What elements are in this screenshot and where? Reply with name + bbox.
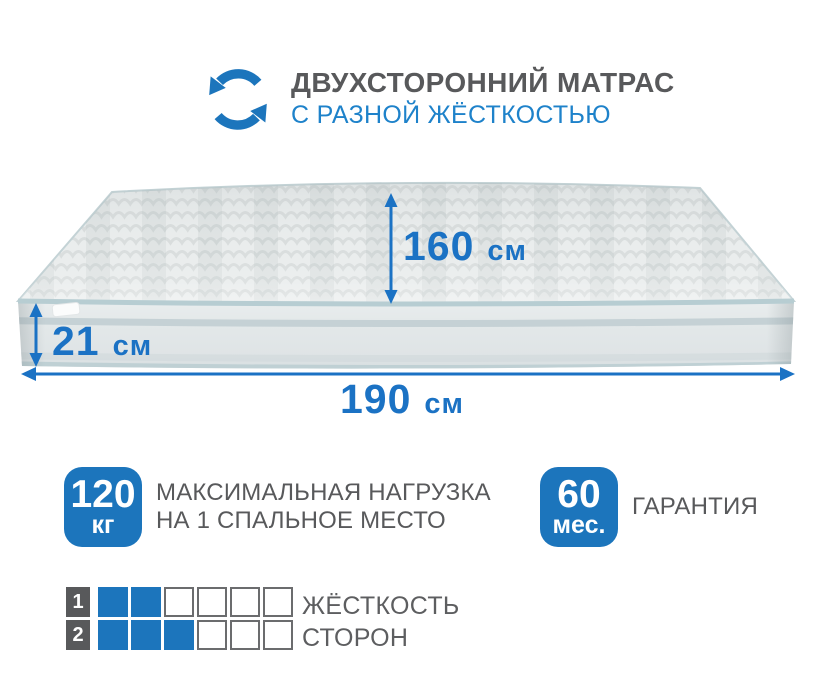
hardness-cell bbox=[164, 587, 194, 617]
warranty-label: ГАРАНТИЯ bbox=[632, 493, 758, 521]
hardness-cell bbox=[164, 620, 194, 650]
height-unit: см bbox=[113, 330, 153, 362]
warranty-value: 60 bbox=[557, 477, 600, 513]
warranty-label-line1: ГАРАНТИЯ bbox=[632, 493, 758, 521]
max-load-label-line2: НА 1 СПАЛЬНОЕ МЕСТО bbox=[156, 507, 491, 535]
warranty-feature: 60 мес. ГАРАНТИЯ bbox=[540, 467, 758, 547]
hardness-cell bbox=[263, 587, 293, 617]
hardness-row-number: 2 bbox=[66, 620, 90, 650]
hardness-cell bbox=[263, 620, 293, 650]
warranty-badge: 60 мес. bbox=[540, 467, 618, 547]
warranty-unit: мес. bbox=[553, 513, 606, 538]
max-load-badge: 120 кг bbox=[64, 467, 142, 547]
max-load-label-line1: МАКСИМАЛЬНАЯ НАГРУЗКА bbox=[156, 479, 491, 507]
max-load-value: 120 bbox=[70, 477, 135, 513]
hardness-cell bbox=[131, 620, 161, 650]
hardness-squares bbox=[98, 587, 293, 617]
hardness-row-side1: 1 bbox=[66, 587, 293, 617]
depth-dimension-label: 160см bbox=[403, 226, 527, 267]
hardness-row-number: 1 bbox=[66, 587, 90, 617]
hardness-scale: 1 2 bbox=[66, 587, 293, 653]
height-value: 21 bbox=[52, 318, 100, 364]
hardness-caption-line1: ЖЁСТКОСТЬ bbox=[302, 590, 460, 622]
hardness-cell bbox=[98, 587, 128, 617]
hardness-cell bbox=[131, 587, 161, 617]
hardness-caption-line2: СТОРОН bbox=[302, 622, 460, 654]
hardness-cell bbox=[197, 587, 227, 617]
hardness-cell bbox=[197, 620, 227, 650]
width-dimension-label: 190см bbox=[340, 379, 464, 420]
hardness-cell bbox=[230, 620, 260, 650]
depth-unit: см bbox=[487, 235, 527, 267]
width-unit: см bbox=[424, 388, 464, 420]
max-load-feature: 120 кг МАКСИМАЛЬНАЯ НАГРУЗКА НА 1 СПАЛЬН… bbox=[64, 467, 491, 547]
infographic-canvas: ДВУХСТОРОННИЙ МАТРАС С РАЗНОЙ ЖЁСТКОСТЬЮ bbox=[0, 0, 816, 700]
mattress-tag bbox=[52, 302, 80, 317]
hardness-squares bbox=[98, 620, 293, 650]
max-load-label: МАКСИМАЛЬНАЯ НАГРУЗКА НА 1 СПАЛЬНОЕ МЕСТ… bbox=[156, 479, 491, 535]
max-load-unit: кг bbox=[92, 513, 115, 538]
hardness-row-side2: 2 bbox=[66, 620, 293, 650]
width-value: 190 bbox=[340, 376, 411, 422]
depth-value: 160 bbox=[403, 223, 474, 269]
height-dimension-label: 21см bbox=[52, 321, 152, 362]
hardness-cell bbox=[98, 620, 128, 650]
hardness-cell bbox=[230, 587, 260, 617]
hardness-caption: ЖЁСТКОСТЬ СТОРОН bbox=[302, 590, 460, 654]
